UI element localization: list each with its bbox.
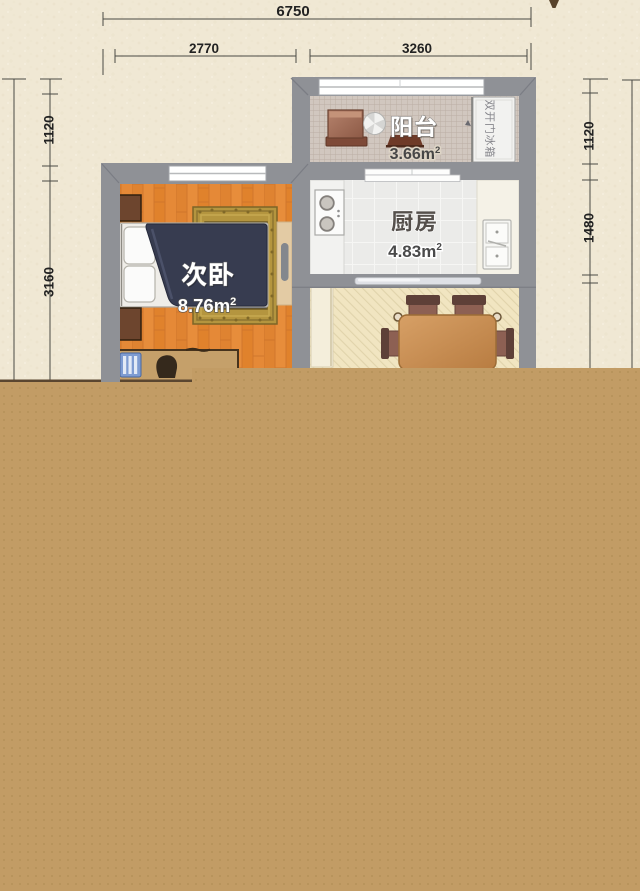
svg-text:4.83m2: 4.83m2 [388,242,442,261]
svg-text:2770: 2770 [189,41,219,56]
svg-text:3.66m2: 3.66m2 [390,145,441,163]
svg-text:3260: 3260 [402,41,432,56]
svg-text:1120: 1120 [42,115,57,144]
svg-text:8.76m2: 8.76m2 [178,295,237,316]
svg-text:3160: 3160 [42,267,57,297]
svg-text:1120: 1120 [582,121,597,150]
svg-text:1480: 1480 [582,213,597,243]
svg-text:6750: 6750 [276,3,309,20]
